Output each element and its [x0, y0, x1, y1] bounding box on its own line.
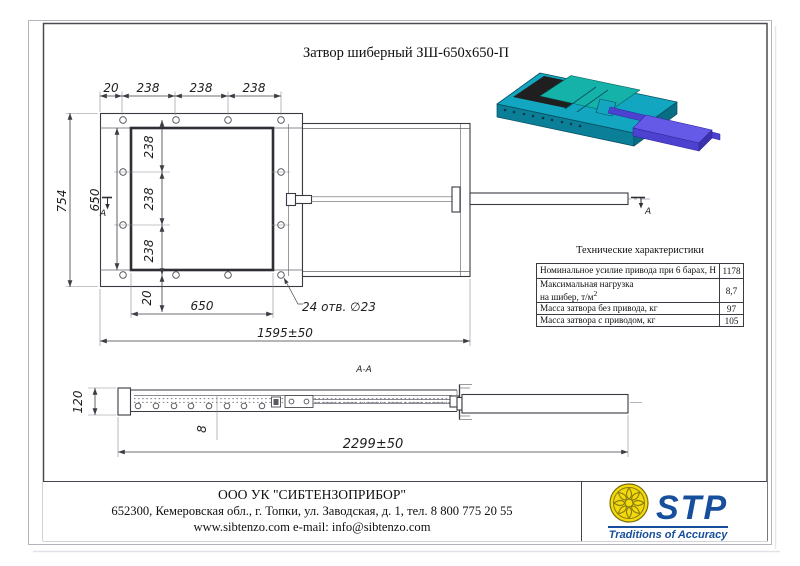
company-info: ООО УК "СИБТЕНЗОПРИБОР" 652300, Кемеровс…: [43, 482, 582, 541]
row-label: Масса затвора без привода, кг: [537, 304, 719, 314]
cut-letter-left: А: [99, 209, 106, 219]
dim-8: 8: [195, 425, 209, 433]
cylinder-rod: [470, 193, 628, 205]
dim-2299: 2299±50: [343, 437, 404, 452]
dim-238-v1: 238: [142, 135, 156, 158]
knot-icon: [608, 482, 650, 524]
row-label: Масса затвора с приводом, кг: [537, 316, 719, 326]
table-row: Масса затвора без привода, кг 97: [537, 302, 743, 314]
dim-120: 120: [71, 390, 85, 413]
dim-650-bottom: 650: [191, 299, 214, 313]
side-clevis: [272, 396, 314, 408]
stp-logo: STP Traditions of Accuracy: [608, 482, 728, 542]
iso-3d-view: [497, 73, 720, 151]
row-label: Номинальное усилие привода при 6 барах, …: [537, 266, 719, 276]
dim-top-238c: 238: [243, 81, 266, 95]
company-name: ООО УК "СИБТЕНЗОПРИБОР": [43, 487, 581, 504]
dim-754: 754: [55, 190, 69, 213]
dim-650-left: 650: [88, 188, 102, 211]
tech-table: Номинальное усилие привода при 6 барах, …: [536, 263, 744, 327]
section-label: А-А: [355, 365, 372, 375]
dim-20-bottom: 20: [140, 290, 154, 306]
holes-note: 24 отв. ∅23: [302, 300, 376, 314]
cut-letter-right: А: [644, 207, 651, 217]
cut-marker-right: А: [631, 197, 651, 217]
tech-table-title: Технические характеристики: [536, 245, 744, 256]
dim-238-v3: 238: [142, 239, 156, 262]
row-label: Максимальная нагрузка на шибер, т/м2: [537, 279, 719, 302]
row-value: 1178: [719, 264, 743, 278]
drawing-title: Затвор шиберный ЗШ-650х650-П: [156, 45, 656, 62]
stp-wordmark: STP: [656, 493, 728, 524]
dim-1595: 1595±50: [257, 326, 313, 340]
tech-characteristics: Технические характеристики Номинальное у…: [536, 245, 744, 327]
table-row: Номинальное усилие привода при 6 барах, …: [537, 264, 743, 278]
title-block: ООО УК "СИБТЕНЗОПРИБОР" 652300, Кемеровс…: [43, 481, 767, 541]
dim-top-20: 20: [103, 81, 119, 95]
dim-top-238b: 238: [190, 81, 213, 95]
logo-tagline: Traditions of Accuracy: [608, 529, 728, 541]
logo-cell: STP Traditions of Accuracy: [582, 482, 767, 541]
dim-238-v2: 238: [142, 187, 156, 210]
logo-rule: [608, 526, 728, 529]
end-plate: [118, 388, 131, 415]
side-bolt-holes: [135, 403, 265, 409]
company-web: www.sibtenzo.com e-mail: info@sibtenzo.c…: [43, 520, 581, 536]
company-address: 652300, Кемеровская обл., г. Топки, ул. …: [43, 504, 581, 520]
table-row: Масса затвора с приводом, кг 105: [537, 314, 743, 326]
guide-frame: [303, 124, 471, 277]
row-value: 8,7: [719, 279, 743, 302]
row-value: 105: [719, 315, 743, 326]
row-value: 97: [719, 303, 743, 314]
dim-top-238a: 238: [137, 81, 160, 95]
side-view: А-А: [71, 365, 642, 457]
pneumatic-cylinder: [462, 395, 628, 414]
table-row: Максимальная нагрузка на шибер, т/м2 8,7: [537, 278, 743, 302]
actuator-3d: [633, 115, 720, 151]
drawing-sheet: 20 238 238 238 754 650 238 238 238 20 65…: [0, 0, 800, 566]
